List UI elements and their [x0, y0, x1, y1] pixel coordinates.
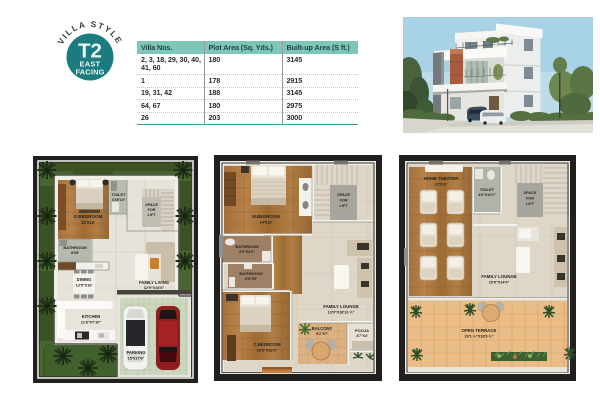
- svg-text:SPACE: SPACE: [337, 193, 350, 197]
- svg-text:28'1 ½"X18'9 ½": 28'1 ½"X18'9 ½": [464, 335, 493, 339]
- svg-text:M.BEDROOM: M.BEDROOM: [252, 214, 280, 219]
- svg-text:KITCHEN: KITCHEN: [82, 314, 101, 319]
- svg-text:HOME THEATER: HOME THEATER: [424, 176, 460, 181]
- svg-text:14'X13': 14'X13': [260, 221, 273, 225]
- svg-text:FACING: FACING: [75, 68, 104, 77]
- svg-text:G.BEDROOM: G.BEDROOM: [74, 214, 103, 219]
- svg-text:PARKING: PARKING: [127, 350, 146, 355]
- svg-text:C.BEDROOM: C.BEDROOM: [253, 342, 281, 347]
- svg-text:DINING: DINING: [77, 277, 92, 282]
- svg-text:4'7"X4': 4'7"X4': [356, 334, 368, 338]
- svg-text:LIFT: LIFT: [147, 213, 156, 217]
- svg-text:BATHROOM: BATHROOM: [63, 245, 87, 250]
- svg-text:BATHROOM: BATHROOM: [235, 244, 259, 249]
- svg-text:13'5"X16': 13'5"X16': [76, 284, 93, 288]
- svg-text:12'X24': 12'X24': [435, 183, 448, 187]
- svg-text:LIFT: LIFT: [526, 202, 535, 206]
- svg-text:TOILET: TOILET: [480, 187, 495, 192]
- svg-text:FAMILY LOUNGE: FAMILY LOUNGE: [323, 304, 359, 309]
- svg-text:13'9"X18'10 ½": 13'9"X18'10 ½": [328, 311, 355, 315]
- svg-text:FOR: FOR: [339, 199, 347, 203]
- svg-text:9'2"X7': 9'2"X7': [316, 332, 328, 336]
- svg-text:BATHROOM: BATHROOM: [239, 271, 263, 276]
- svg-text:OPEN TERRACE: OPEN TERRACE: [462, 328, 497, 333]
- svg-text:12'X12': 12'X12': [81, 220, 95, 225]
- svg-text:4'6"X10'2": 4'6"X10'2": [478, 193, 496, 197]
- svg-text:FAMILY LIVING: FAMILY LIVING: [139, 280, 169, 285]
- svg-text:8'X8': 8'X8': [71, 251, 79, 255]
- svg-text:15'X17'6": 15'X17'6": [128, 357, 145, 361]
- svg-text:15'9"X14'4": 15'9"X14'4": [489, 281, 510, 285]
- svg-text:FAMILY LOUNGE: FAMILY LOUNGE: [481, 274, 517, 279]
- svg-text:8'9"X5': 8'9"X5': [245, 277, 257, 281]
- svg-text:TOILET: TOILET: [111, 192, 126, 197]
- svg-text:SPACE: SPACE: [145, 203, 158, 207]
- svg-text:LIFT: LIFT: [339, 204, 348, 208]
- svg-text:BALCONY: BALCONY: [312, 326, 333, 331]
- svg-text:FOR: FOR: [526, 197, 534, 201]
- svg-text:POOJA: POOJA: [355, 328, 369, 333]
- svg-text:11'8"X7'10": 11'8"X7'10": [81, 321, 102, 325]
- svg-text:FOR: FOR: [147, 208, 155, 212]
- svg-text:SPACE: SPACE: [524, 191, 537, 195]
- svg-text:4'X9'10": 4'X9'10": [112, 198, 126, 202]
- svg-text:12'9"X16'6": 12'9"X16'6": [144, 286, 165, 290]
- svg-text:13'9"X12'6": 13'9"X12'6": [257, 349, 278, 353]
- svg-text:8'9"X3'5": 8'9"X3'5": [239, 250, 255, 254]
